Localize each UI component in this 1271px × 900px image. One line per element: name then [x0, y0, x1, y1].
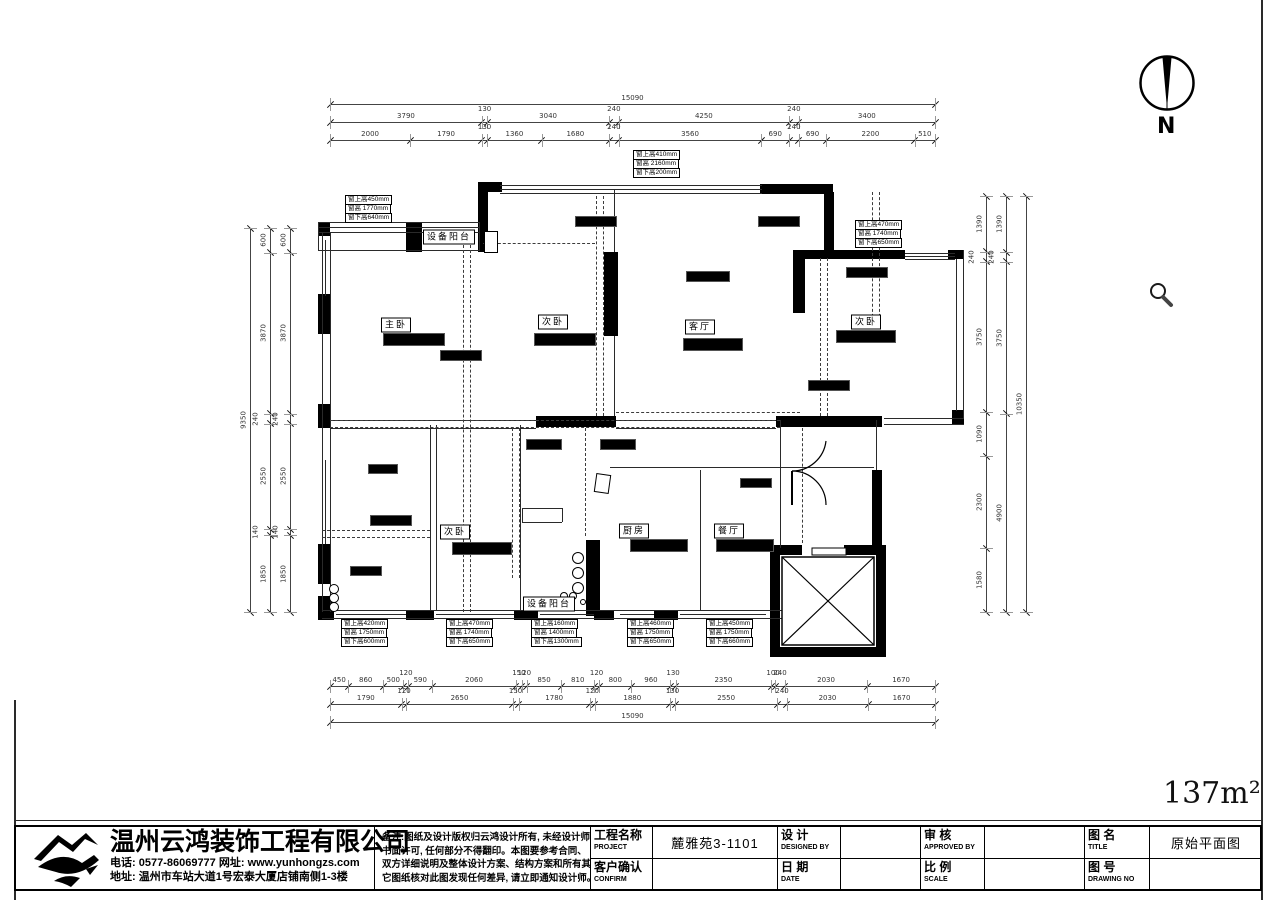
- room-label: 餐厅: [714, 524, 744, 539]
- dimension-value: 130: [478, 124, 491, 131]
- field-label: 图 号: [1088, 860, 1146, 875]
- dimension-value: 130: [478, 106, 491, 113]
- dimension-value: 500: [387, 677, 400, 684]
- extension-stub: [935, 698, 936, 711]
- dimension-value: 2350: [714, 677, 732, 684]
- north-arrow-icon: [1138, 54, 1196, 112]
- annotation-line: 窗上高470mm: [855, 220, 902, 230]
- dimension-value: 3870: [261, 324, 268, 342]
- entry-door-arc: [792, 471, 826, 505]
- dimension-value: 240: [775, 688, 788, 695]
- elevator-door: [812, 548, 846, 555]
- room-label: 厨房: [619, 524, 649, 539]
- annotation-line: 窗下高640mm: [345, 213, 392, 223]
- extension-stub: [330, 698, 331, 711]
- dimension-value: 1790: [437, 131, 455, 138]
- dimension-value: 240: [773, 670, 786, 677]
- dimension-value: 3040: [539, 113, 557, 120]
- annotation-line: 窗下高650mm: [627, 637, 674, 647]
- dimension-value: 140: [253, 526, 260, 539]
- extension-stub: [1020, 612, 1033, 613]
- extension-stub: [284, 424, 297, 425]
- annotation-line: 窗高 1740mm: [855, 229, 901, 239]
- dimension-line: [1006, 196, 1007, 612]
- note-line: 它图纸核对此图发现任何差异, 请立即通知设计师。: [382, 872, 588, 886]
- dimension-value: 3790: [397, 113, 415, 120]
- dimension-value: 1780: [545, 695, 563, 702]
- extension-stub: [670, 698, 671, 711]
- field-label: 审 核: [924, 828, 981, 843]
- field-value-cell: 原始平面图: [1149, 827, 1262, 858]
- dimension-line: [1026, 196, 1027, 612]
- room-label: 设备阳台: [423, 230, 475, 245]
- dimension-value: 3560: [681, 131, 699, 138]
- extension-stub: [330, 134, 331, 147]
- window-height-annotation: 窗上高450mm窗高 1770mm窗下高640mm: [345, 196, 392, 223]
- room-label: 主卧: [381, 318, 411, 333]
- dimension-value: 240: [787, 106, 800, 113]
- dimension-value: 600: [281, 234, 288, 247]
- dimension-value: 240: [273, 412, 280, 425]
- dimension-value: 130: [666, 688, 679, 695]
- annotation-line: 窗下高650mm: [446, 637, 493, 647]
- dimension-line: [330, 104, 935, 105]
- dimension-value: 1670: [892, 677, 910, 684]
- window-height-annotation: 窗上高470mm窗高 1740mm窗下高650mm: [446, 620, 493, 647]
- dimension-value: 4250: [695, 113, 713, 120]
- extension-stub: [980, 456, 993, 457]
- dimension-value: 120: [397, 688, 410, 695]
- dimension-value: 1790: [357, 695, 375, 702]
- window-height-annotation: 窗上高470mm窗高 1740mm窗下高650mm: [855, 221, 902, 248]
- field-label-cell: 图 号DRAWING NO: [1084, 858, 1149, 889]
- extension-stub: [487, 134, 488, 147]
- field-sublabel: TITLE: [1088, 843, 1146, 852]
- dimension-value: 1580: [977, 571, 984, 589]
- drawing-notes: 备注:图纸及设计版权归云鸿设计所有, 未经设计师书面许可, 任何部分不得翻印。本…: [382, 831, 588, 885]
- extension-stub: [935, 134, 936, 147]
- field-value-cell: [840, 827, 920, 858]
- extension-stub: [826, 134, 827, 147]
- field-label-cell: 图 名TITLE: [1084, 827, 1149, 858]
- company-address: 地址: 温州市车站大道1号宏泰大厦店铺南侧1-3楼: [110, 870, 378, 884]
- dimension-line: [330, 722, 935, 723]
- dimension-value: 450: [332, 677, 345, 684]
- extension-stub: [980, 412, 993, 413]
- extension-stub: [432, 680, 433, 693]
- field-label-cell: 审 核APPROVED BY: [920, 827, 984, 858]
- annotation-line: 窗上高420mm: [341, 619, 388, 629]
- field-value: 麓雅苑3-1101: [671, 833, 759, 852]
- extension-stub: [915, 134, 916, 147]
- company-name: 温州云鸿装饰工程有限公司: [110, 829, 378, 856]
- extension-stub: [595, 698, 596, 711]
- extension-stub: [799, 134, 800, 147]
- field-sublabel: APPROVED BY: [924, 843, 981, 852]
- field-label-cell: 客户确认CONFIRM: [590, 858, 652, 889]
- extension-stub: [410, 134, 411, 147]
- dimension-value: 140: [273, 526, 280, 539]
- dimension-value: 120: [399, 670, 412, 677]
- extension-stub: [264, 612, 277, 613]
- field-label: 日 期: [781, 860, 837, 875]
- room-label: 设备阳台: [523, 597, 575, 612]
- field-value-cell: [652, 858, 777, 889]
- dimension-value: 150: [509, 688, 522, 695]
- magnifier-icon: [1148, 282, 1176, 310]
- extension-stub: [284, 529, 297, 530]
- extension-stub: [935, 98, 936, 111]
- field-value-cell: [1149, 858, 1262, 889]
- window-height-annotation: 窗上高420mm窗高 1750mm窗下高600mm: [341, 620, 388, 647]
- dimension-value: 240: [607, 106, 620, 113]
- dimension-line: [290, 228, 291, 612]
- dimension-value: 1670: [893, 695, 911, 702]
- extension-stub: [330, 716, 331, 729]
- dimension-value: 120: [518, 670, 531, 677]
- field-value-cell: [840, 858, 920, 889]
- annotation-line: 窗下高200mm: [633, 168, 680, 178]
- field-label-cell: 工程名称PROJECT: [590, 827, 652, 858]
- field-label-cell: 日 期DATE: [777, 858, 840, 889]
- dimension-value: 1850: [281, 565, 288, 583]
- extension-stub: [1000, 196, 1013, 197]
- note-line: 备注:图纸及设计版权归云鸿设计所有, 未经设计师: [382, 831, 588, 845]
- note-line: 书面许可, 任何部分不得翻印。本图要参考合同、: [382, 845, 588, 859]
- extension-stub: [1000, 252, 1013, 253]
- dimension-value: 240: [969, 250, 976, 263]
- extension-stub: [789, 134, 790, 147]
- annotation-line: 窗高 1740mm: [446, 628, 492, 638]
- note-line: 双方详细说明及整体设计方案、结构方案和所有其: [382, 858, 588, 872]
- dimension-value: 2200: [862, 131, 880, 138]
- extension-stub: [935, 116, 936, 129]
- extension-stub: [264, 228, 277, 229]
- extension-stub: [513, 698, 514, 711]
- extension-stub: [980, 548, 993, 549]
- dimension-value: 2550: [281, 468, 288, 486]
- dimension-value: 15090: [621, 713, 643, 720]
- extension-stub: [761, 134, 762, 147]
- extension-stub: [284, 535, 297, 536]
- window-height-annotation: 窗上高410mm窗高 2160mm窗下高200mm: [633, 151, 680, 178]
- extension-stub: [1000, 262, 1013, 263]
- dimension-value: 2000: [361, 131, 379, 138]
- field-sublabel: SCALE: [924, 875, 981, 884]
- extension-stub: [244, 228, 257, 229]
- extension-stub: [609, 134, 610, 147]
- window-height-annotation: 窗上高450mm窗高 1750mm窗下高660mm: [706, 620, 753, 647]
- extension-stub: [482, 134, 483, 147]
- extension-stub: [935, 680, 936, 693]
- floor-plan-canvas[interactable]: 主卧次卧客厅次卧次卧厨房餐厅设备阳台设备阳台窗上高450mm窗高 1770mm窗…: [0, 0, 1271, 820]
- annotation-line: 窗高 1750mm: [706, 628, 752, 638]
- dimension-value: 10350: [1017, 393, 1024, 415]
- room-label: 次卧: [538, 315, 568, 330]
- extension-stub: [867, 680, 868, 693]
- dimension-value: 240: [607, 124, 620, 131]
- dimension-value: 9350: [241, 411, 248, 429]
- dimension-value: 2650: [451, 695, 469, 702]
- extension-stub: [787, 698, 788, 711]
- extension-stub: [330, 680, 331, 693]
- dimension-value: 1090: [977, 425, 984, 443]
- extension-stub: [771, 680, 772, 693]
- extension-stub: [284, 414, 297, 415]
- dimension-value: 3750: [997, 329, 1004, 347]
- extension-stub: [631, 680, 632, 693]
- annotation-line: 窗上高450mm: [706, 619, 753, 629]
- dimension-value: 1390: [997, 215, 1004, 233]
- dimension-value: 3400: [858, 113, 876, 120]
- dimension-value: 4900: [997, 504, 1004, 522]
- annotation-line: 窗高 1400mm: [531, 628, 577, 638]
- annotation-line: 窗上高160mm: [531, 619, 578, 629]
- title-block: 温州云鸿装饰工程有限公司 电话: 0577-86069777 网址: www.y…: [14, 820, 1262, 892]
- annotation-line: 窗上高450mm: [345, 195, 392, 205]
- extension-stub: [402, 698, 403, 711]
- extension-stub: [406, 698, 407, 711]
- company-logo: [28, 829, 104, 887]
- extension-stub: [284, 228, 297, 229]
- annotation-line: 窗高 2160mm: [633, 159, 679, 169]
- extension-stub: [590, 698, 591, 711]
- extension-stub: [980, 196, 993, 197]
- extension-stub: [383, 680, 384, 693]
- extension-stub: [1000, 414, 1013, 415]
- annotation-line: 窗上高460mm: [627, 619, 674, 629]
- dimension-value: 2030: [819, 695, 837, 702]
- annotation-line: 窗高 1770mm: [345, 204, 391, 214]
- dimension-line: [330, 140, 935, 141]
- extension-stub: [519, 698, 520, 711]
- dimension-value: 600: [261, 234, 268, 247]
- extension-stub: [777, 698, 778, 711]
- dimension-value: 130: [666, 670, 679, 677]
- field-label: 客户确认: [594, 860, 649, 875]
- area-label: 137m²: [1163, 776, 1261, 811]
- dimension-value: 800: [609, 677, 622, 684]
- field-sublabel: PROJECT: [594, 843, 649, 852]
- extension-stub: [542, 134, 543, 147]
- extension-stub: [599, 680, 600, 693]
- dimension-value: 2550: [261, 468, 268, 486]
- dimension-value: 850: [537, 677, 550, 684]
- field-label: 设 计: [781, 828, 837, 843]
- field-label-cell: 设 计DESIGNED BY: [777, 827, 840, 858]
- extension-stub: [980, 612, 993, 613]
- field-sublabel: DRAWING NO: [1088, 875, 1146, 884]
- dimension-value: 120: [586, 688, 599, 695]
- extension-stub: [1020, 196, 1033, 197]
- extension-stub: [1000, 612, 1013, 613]
- extension-stub: [284, 612, 297, 613]
- dimension-line: [330, 122, 935, 123]
- field-sublabel: DESIGNED BY: [781, 843, 837, 852]
- dimension-value: 810: [571, 677, 584, 684]
- extension-stub: [284, 253, 297, 254]
- field-label: 图 名: [1088, 828, 1146, 843]
- extension-stub: [675, 698, 676, 711]
- company-phone: 电话: 0577-86069777 网址: www.yunhongzs.com: [110, 856, 378, 870]
- dimension-value: 860: [359, 677, 372, 684]
- room-label: 客厅: [685, 320, 715, 335]
- dimension-value: 3870: [281, 324, 288, 342]
- field-value: 原始平面图: [1171, 833, 1241, 852]
- window-height-annotation: 窗上高160mm窗高 1400mm窗下高1300mm: [531, 620, 582, 647]
- annotation-line: 窗下高1300mm: [531, 637, 582, 647]
- extension-stub: [935, 716, 936, 729]
- field-label: 比 例: [924, 860, 981, 875]
- drawing-sheet: 主卧次卧客厅次卧次卧厨房餐厅设备阳台设备阳台窗上高450mm窗高 1770mm窗…: [0, 0, 1271, 900]
- extension-stub: [348, 680, 349, 693]
- dimension-value: 690: [769, 131, 782, 138]
- annotation-line: 窗上高470mm: [446, 619, 493, 629]
- annotation-line: 窗高 1750mm: [627, 628, 673, 638]
- dimension-value: 3750: [977, 328, 984, 346]
- dimension-value: 510: [918, 131, 931, 138]
- field-label-cell: 比 例SCALE: [920, 858, 984, 889]
- extension-stub: [244, 612, 257, 613]
- field-value-cell: 麓雅苑3-1101: [652, 827, 777, 858]
- annotation-line: 窗高 1750mm: [341, 628, 387, 638]
- dimension-value: 960: [644, 677, 657, 684]
- dimension-value: 2550: [717, 695, 735, 702]
- dimension-value: 690: [806, 131, 819, 138]
- extension-stub: [330, 98, 331, 111]
- extension-stub: [264, 253, 277, 254]
- extension-stub: [619, 134, 620, 147]
- annotation-line: 窗下高650mm: [855, 238, 902, 248]
- annotation-line: 窗下高660mm: [706, 637, 753, 647]
- dimension-value: 15090: [621, 95, 643, 102]
- room-label: 次卧: [440, 525, 470, 540]
- dimension-line: [330, 704, 935, 705]
- north-label: N: [1157, 114, 1175, 139]
- field-value-cell: [984, 827, 1084, 858]
- extension-stub: [330, 116, 331, 129]
- annotation-line: 窗下高600mm: [341, 637, 388, 647]
- dimension-value: 240: [253, 412, 260, 425]
- field-sublabel: DATE: [781, 875, 837, 884]
- extension-stub: [868, 698, 869, 711]
- dimension-value: 2300: [977, 493, 984, 511]
- dimension-value: 2030: [817, 677, 835, 684]
- room-label: 次卧: [851, 315, 881, 330]
- dimension-value: 2060: [465, 677, 483, 684]
- extension-stub: [561, 680, 562, 693]
- dimension-value: 120: [590, 670, 603, 677]
- field-sublabel: CONFIRM: [594, 875, 649, 884]
- title-block-fields: 工程名称PROJECT麓雅苑3-1101设 计DESIGNED BY审 核APP…: [590, 827, 1262, 889]
- extension-stub: [527, 680, 528, 693]
- dimension-value: 240: [989, 250, 996, 263]
- window-height-annotation: 窗上高460mm窗高 1750mm窗下高650mm: [627, 620, 674, 647]
- field-label: 工程名称: [594, 828, 649, 843]
- field-value-cell: [984, 858, 1084, 889]
- dimension-value: 1850: [261, 565, 268, 583]
- entry-door-arc: [792, 441, 826, 471]
- annotation-line: 窗上高410mm: [633, 150, 680, 160]
- dimension-value: 1390: [977, 215, 984, 233]
- dimension-value: 1680: [566, 131, 584, 138]
- dimension-value: 1360: [506, 131, 524, 138]
- dimension-value: 590: [414, 677, 427, 684]
- dimension-value: 240: [787, 124, 800, 131]
- dimension-value: 1880: [623, 695, 641, 702]
